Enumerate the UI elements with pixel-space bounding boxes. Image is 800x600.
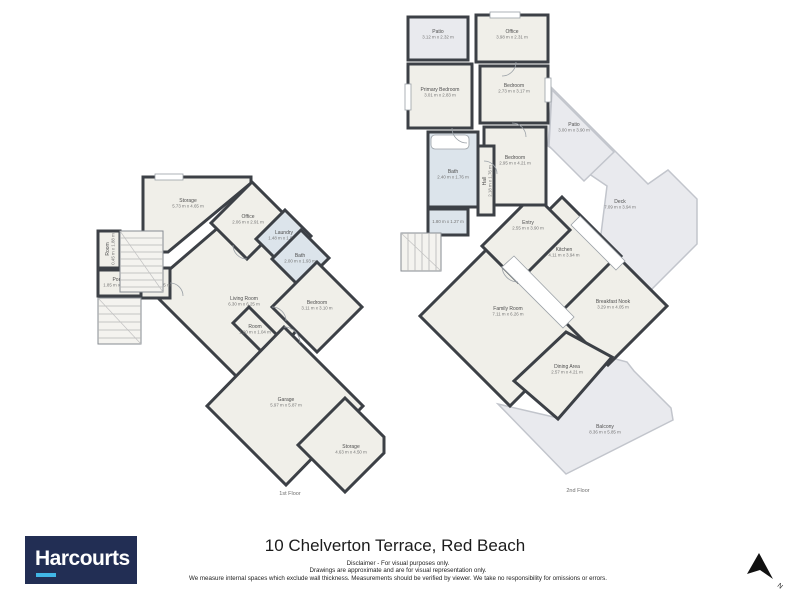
room-label: Dining Area2.57 m x 4.21 m (551, 364, 583, 375)
north-label: N (776, 582, 784, 591)
room-room-strip-1f: Room0.45 m x 1.88 m (98, 231, 120, 268)
disclaimer-text: Disclaimer - For visual purposes only. D… (0, 560, 796, 582)
room-label: Breakfast Nook3.29 m x 4.05 m (596, 299, 631, 310)
floor-plans: Living Room6.30 m x 6.25 mStorage5.73 m … (0, 0, 800, 600)
room-primary-bedroom-2f: Primary Bedroom3.01 m x 2.83 m (408, 64, 472, 128)
floor-plan-2nd: Deck7.09 m x 3.94 mPatio3.00 m x 3.90 mP… (401, 12, 697, 494)
room-bedroom-topright-2f: Bedroom2.73 m x 3.17 m (480, 66, 548, 123)
floorplan-page: Living Room6.30 m x 6.25 mStorage5.73 m … (0, 0, 800, 600)
property-address: 10 Chelverton Terrace, Red Beach (0, 536, 790, 556)
floor-plan-1st: Living Room6.30 m x 6.25 mStorage5.73 m … (98, 174, 384, 497)
disclaimer-line-3: We measure internal spaces which exclude… (0, 575, 796, 582)
room-label: Family Room7.11 m x 6.26 m (492, 306, 523, 317)
fixture (405, 84, 411, 110)
floor-caption: 2nd Floor (566, 488, 589, 494)
stairs (98, 298, 141, 344)
fixture (155, 174, 183, 180)
room-hall-2f: Hall2.18 m x 1.76 m (478, 146, 494, 215)
room-label: Living Room6.30 m x 6.25 m (228, 296, 260, 307)
room-wc-2f: 1.80 m x 1.27 m (428, 209, 468, 235)
fixture (431, 135, 469, 149)
room-label: 1.80 m x 1.27 m (432, 219, 464, 224)
room-patio-topleft-2f: Patio3.12 m x 2.32 m (408, 17, 468, 60)
disclaimer-line-2: Drawings are approximate and are for vis… (0, 567, 796, 574)
room-office-2f: Office3.98 m x 2.31 m (476, 15, 548, 62)
stairs (120, 231, 163, 292)
room-label: Primary Bedroom3.01 m x 2.83 m (421, 87, 460, 98)
disclaimer-line-1: Disclaimer - For visual purposes only. (0, 560, 796, 567)
stairs (401, 233, 441, 271)
fixture (545, 78, 551, 102)
floor-caption: 1st Floor (279, 491, 301, 497)
fixture (490, 12, 520, 18)
